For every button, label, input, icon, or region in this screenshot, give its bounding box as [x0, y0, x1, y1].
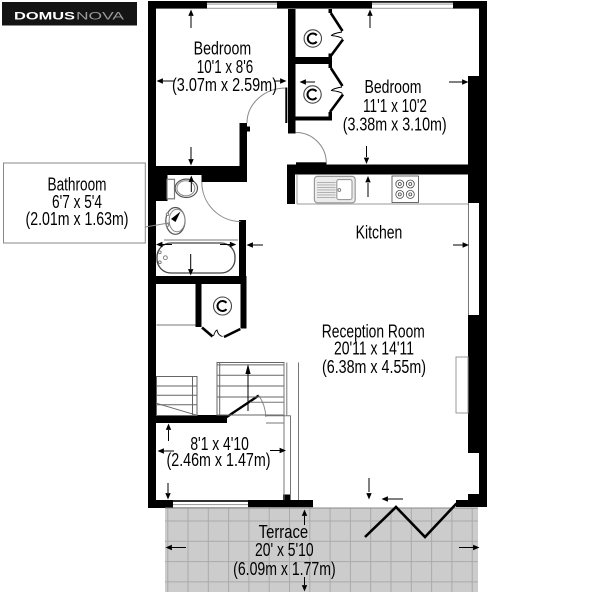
svg-text:(6.38m x 4.55m): (6.38m x 4.55m) — [322, 356, 426, 377]
svg-text:(2.46m x 1.47m): (2.46m x 1.47m) — [167, 449, 271, 470]
svg-text:Kitchen: Kitchen — [356, 222, 403, 243]
svg-text:(6.09m x 1.77m): (6.09m x 1.77m) — [233, 558, 336, 579]
svg-text:nova: nova — [76, 7, 125, 24]
svg-text:20' x 5'10: 20' x 5'10 — [255, 539, 314, 560]
svg-text:(2.01m x 1.63m): (2.01m x 1.63m) — [26, 208, 129, 229]
svg-text:(3.07m x 2.59m): (3.07m x 2.59m) — [172, 74, 277, 95]
svg-text:domus: domus — [14, 7, 75, 24]
svg-text:Bedroom: Bedroom — [365, 76, 422, 97]
svg-text:(3.38m x 3.10m): (3.38m x 3.10m) — [343, 114, 447, 135]
